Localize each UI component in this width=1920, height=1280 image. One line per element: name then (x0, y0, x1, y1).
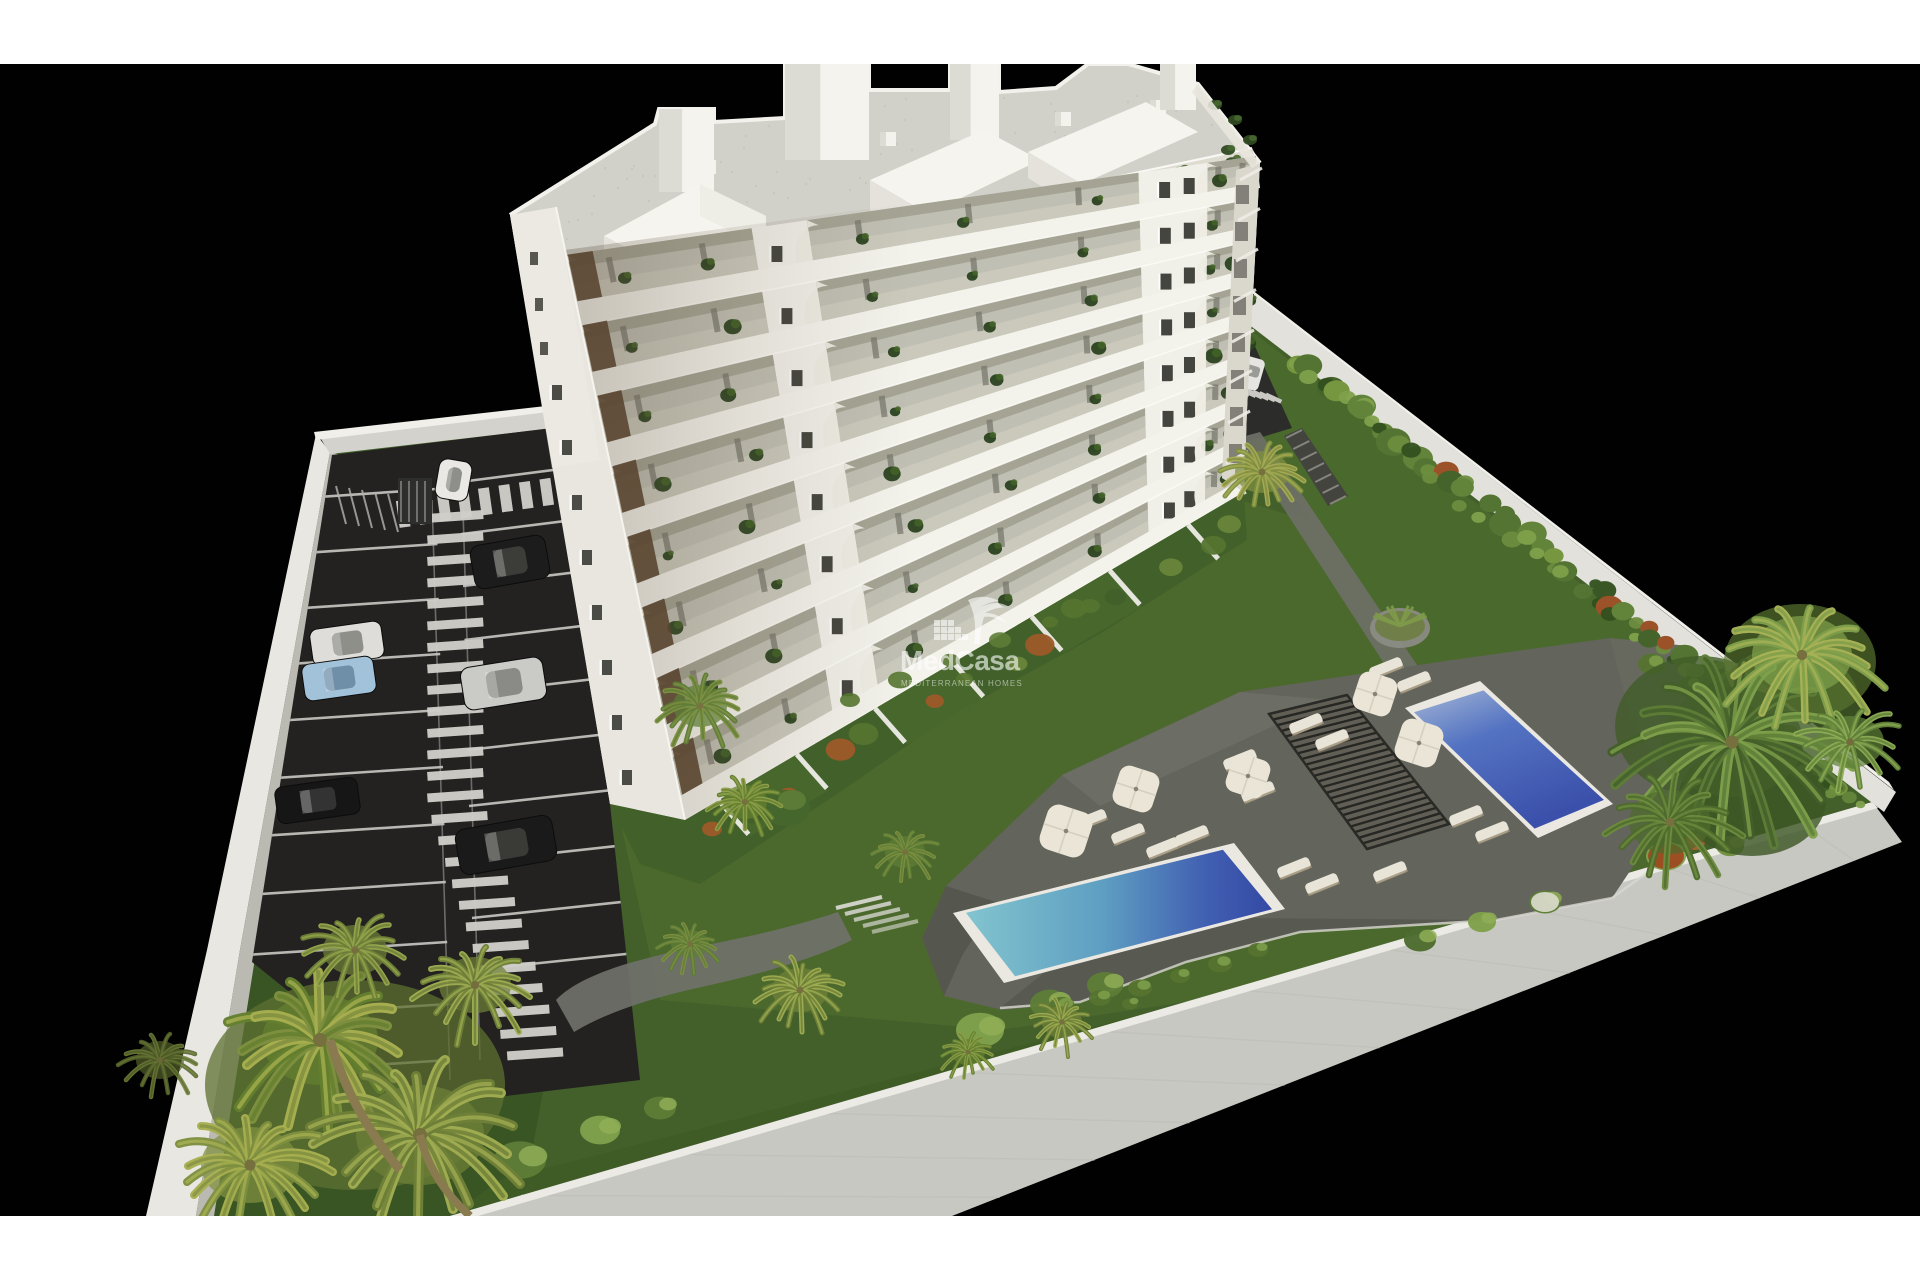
svg-text:MedCasa: MedCasa (900, 645, 1020, 676)
svg-text:MEDITERRANEAN HOMES: MEDITERRANEAN HOMES (901, 679, 1023, 688)
